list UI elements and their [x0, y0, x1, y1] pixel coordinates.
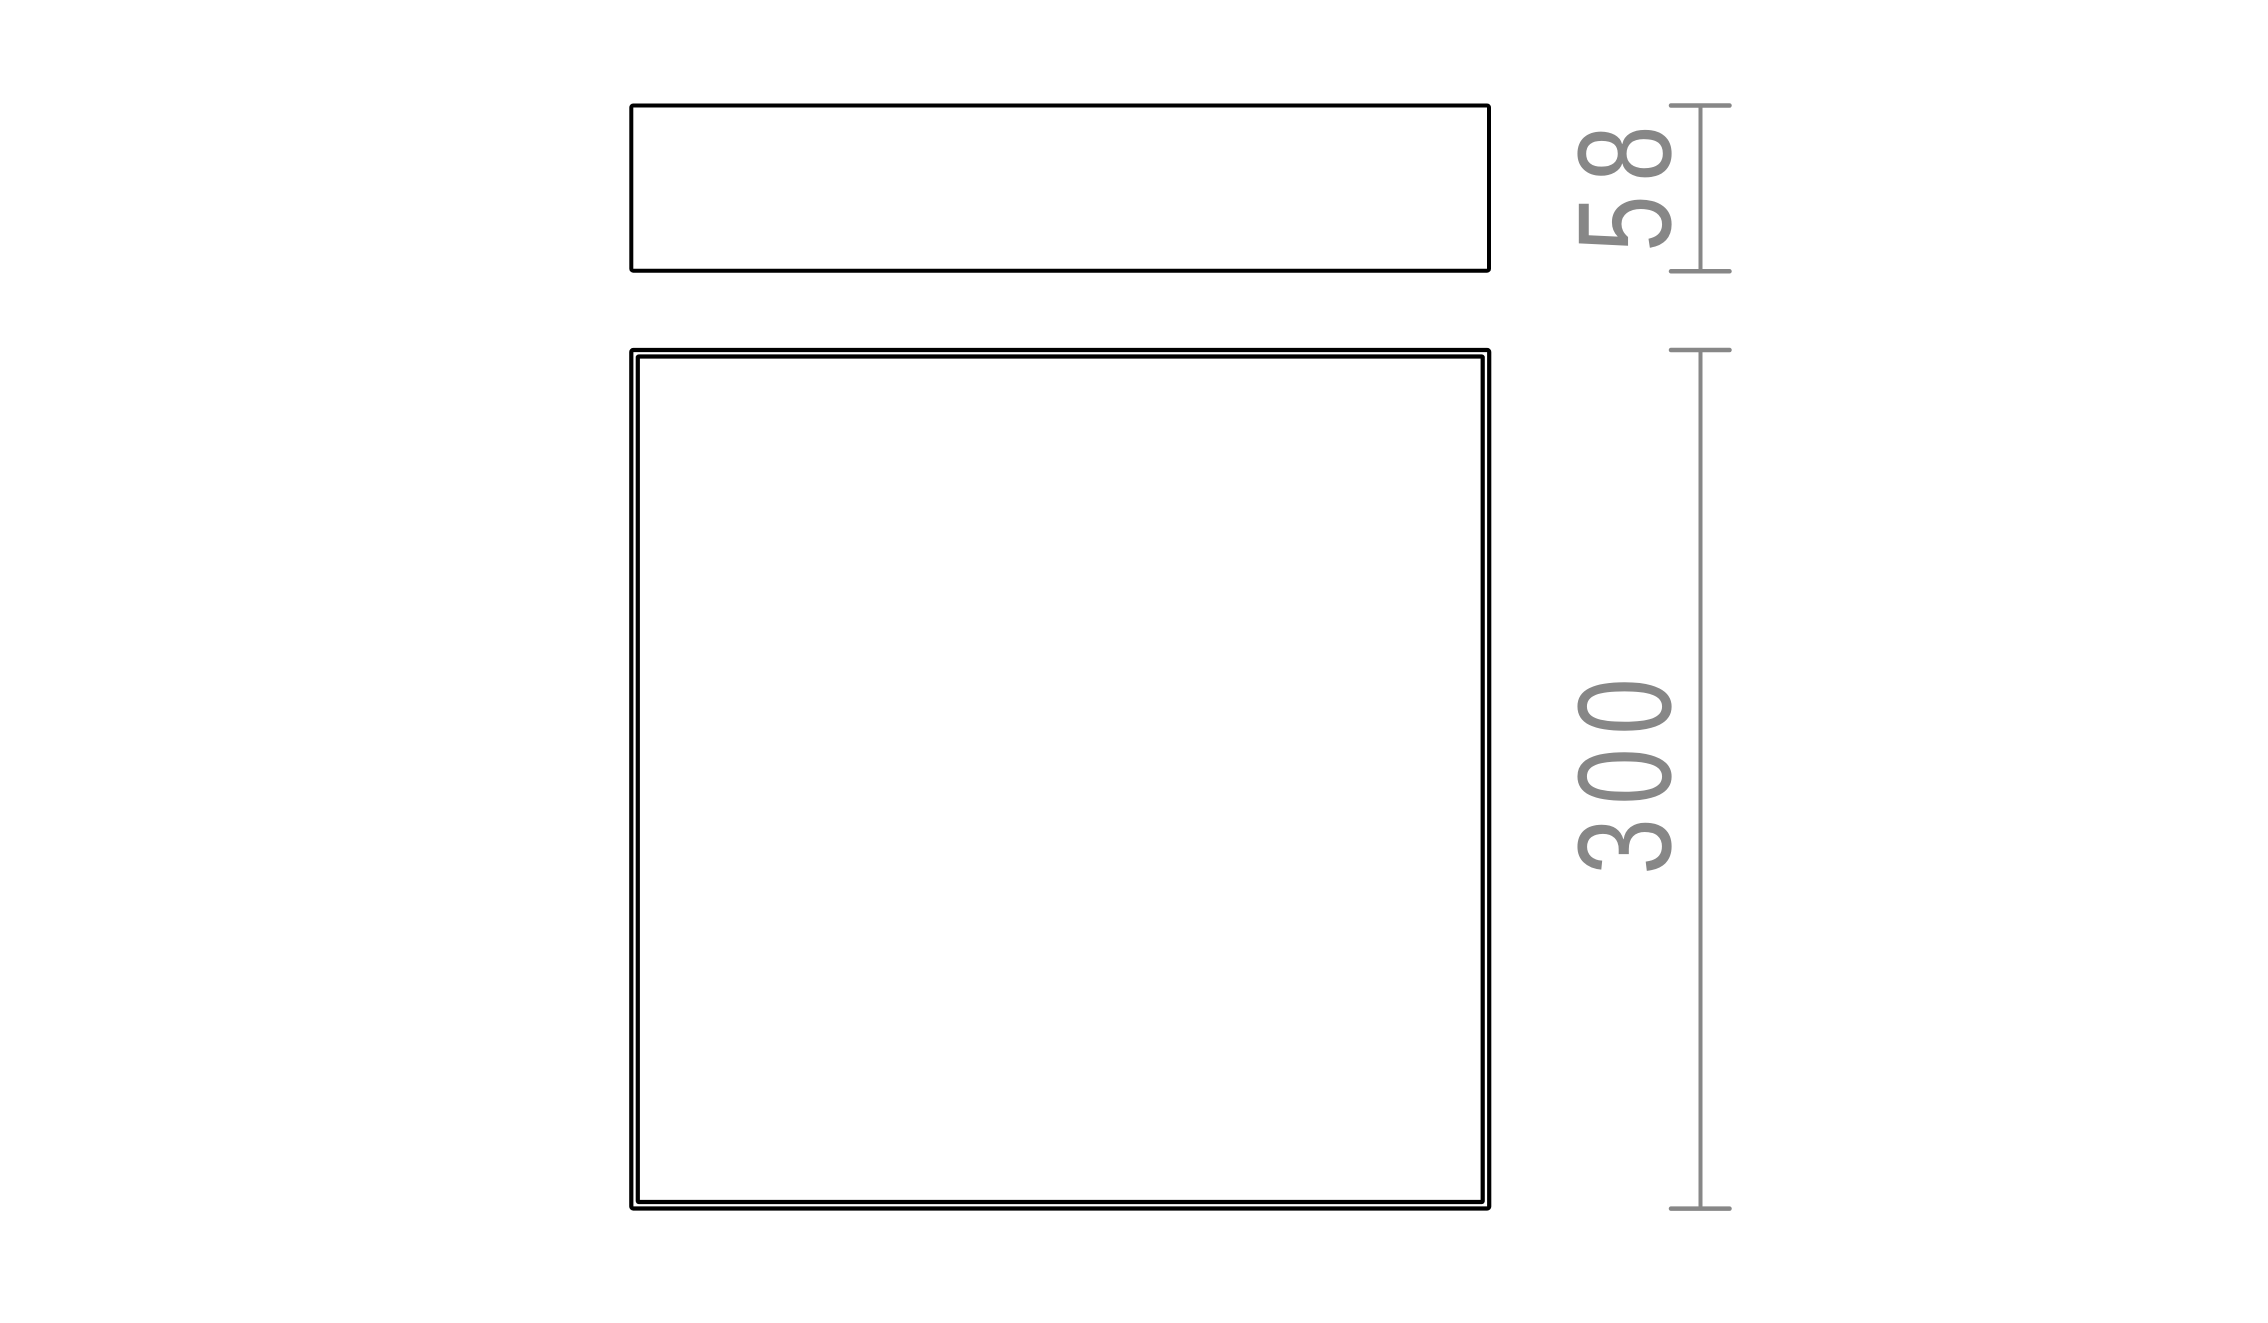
svg-text:58: 58 — [1551, 112, 1699, 252]
svg-text:300: 300 — [1551, 665, 1699, 875]
